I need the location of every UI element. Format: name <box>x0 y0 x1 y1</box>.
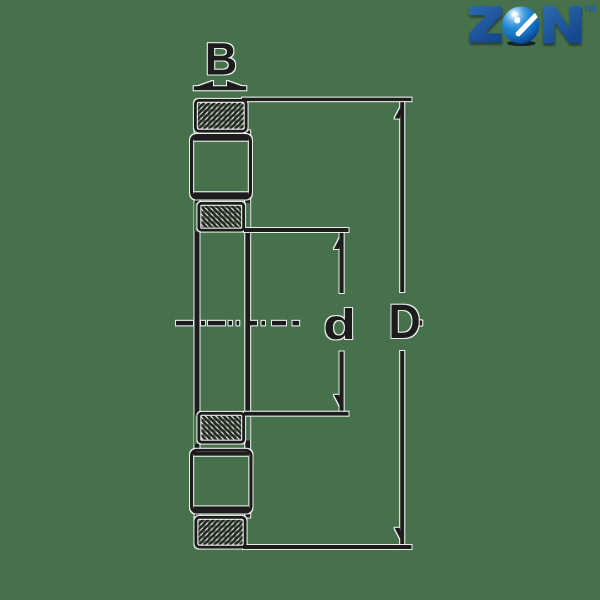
svg-text:TM: TM <box>583 4 595 14</box>
svg-text:B: B <box>205 34 238 85</box>
svg-text:d: d <box>323 301 356 349</box>
svg-text:D: D <box>389 295 421 349</box>
